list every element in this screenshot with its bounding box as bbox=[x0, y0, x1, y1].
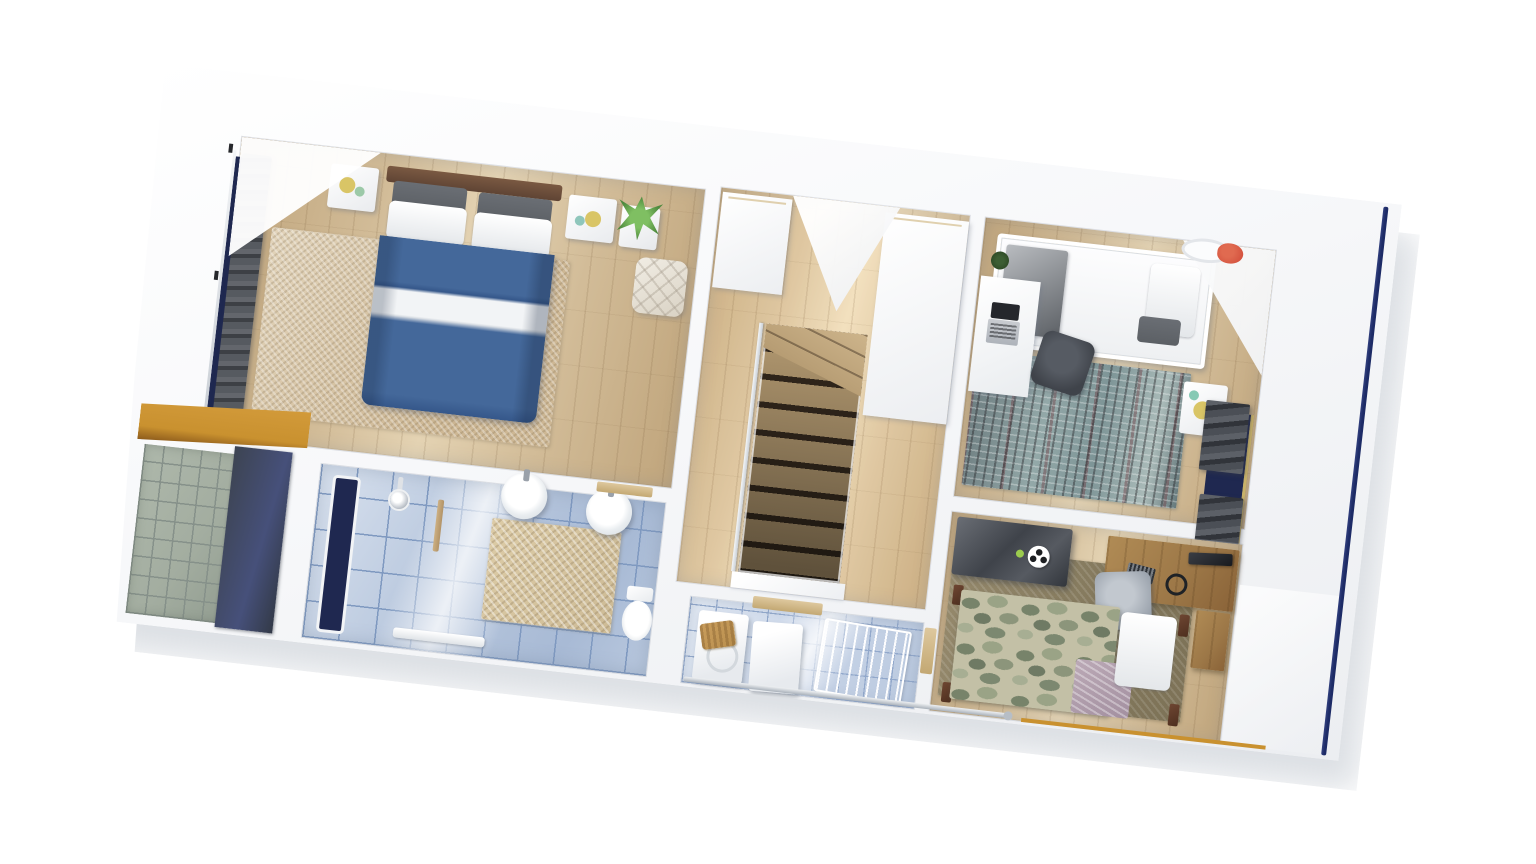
hall-cabinet bbox=[712, 192, 792, 295]
decor-yellow-2 bbox=[584, 210, 602, 228]
monitor bbox=[1188, 552, 1232, 566]
master-armchair bbox=[631, 256, 689, 318]
green-ball bbox=[1016, 549, 1025, 558]
decor-green bbox=[354, 186, 365, 197]
bedroom2-pillow-accent bbox=[1137, 316, 1182, 347]
floorplan-stage bbox=[0, 0, 1536, 864]
soccer-ball bbox=[1027, 545, 1051, 569]
laundry-basket bbox=[699, 620, 736, 650]
decor-teal bbox=[574, 215, 585, 226]
winder-steps bbox=[757, 323, 868, 420]
laptop-keyboard bbox=[989, 323, 1017, 339]
bath-mat bbox=[481, 518, 622, 634]
balcony bbox=[117, 393, 337, 640]
tumble-dryer bbox=[748, 621, 803, 695]
headphones bbox=[1164, 572, 1188, 596]
tap-left bbox=[523, 469, 530, 482]
laptop bbox=[986, 319, 1021, 346]
east-roof-band bbox=[1222, 585, 1339, 755]
laptop-screen bbox=[990, 302, 1020, 321]
bedroom3-desk-return bbox=[1190, 610, 1230, 671]
toilet-tank bbox=[626, 585, 653, 602]
master-bed bbox=[361, 166, 563, 424]
bedroom3-pillow bbox=[1114, 612, 1178, 692]
east-blinds-upper bbox=[1199, 400, 1251, 475]
nightstand-right bbox=[565, 194, 618, 243]
master-duvet bbox=[361, 235, 555, 424]
teal-ball bbox=[1188, 390, 1199, 401]
